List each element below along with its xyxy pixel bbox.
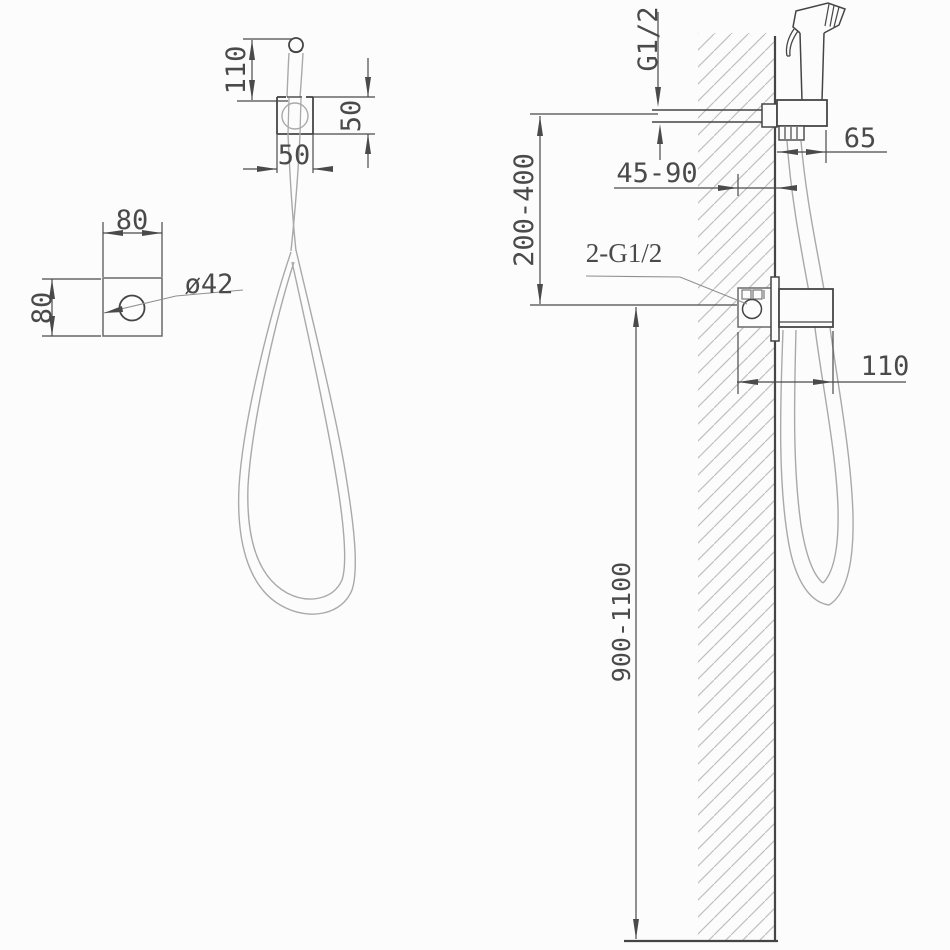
svg-text:50: 50: [278, 140, 311, 171]
side-view: G1/2 65 45-90 200-400: [509, 3, 909, 941]
sprayer-neck-left-line: [287, 53, 289, 97]
dim-hole-diameter: ø42: [104, 269, 243, 313]
cad-canvas: 110 50 50 80: [0, 0, 950, 950]
svg-text:65: 65: [844, 123, 877, 154]
svg-text:G1/2: G1/2: [633, 6, 664, 71]
handle-in-holder-left: [288, 98, 289, 134]
svg-text:200-400: 200-400: [509, 153, 540, 267]
holder-ring: [282, 103, 308, 129]
dim-tip-height: 110: [221, 39, 292, 101]
svg-text:900-1100: 900-1100: [607, 562, 636, 682]
dim-mounting-height: 900-1100: [607, 307, 639, 939]
dim-base-width: 80: [103, 205, 162, 277]
svg-text:80: 80: [116, 205, 149, 236]
wall-hatch: [698, 33, 775, 941]
hose-loop-front: [239, 134, 356, 614]
svg-text:50: 50: [336, 100, 367, 133]
svg-text:110: 110: [861, 351, 910, 382]
front-view: 110 50 50 80: [27, 38, 375, 614]
dim-base-height: 80: [27, 279, 101, 336]
dim-holder-width: 50: [243, 134, 333, 173]
valve-handle-box: [779, 289, 833, 327]
pipe-wall-fitting: [762, 104, 777, 127]
hose-nut: [779, 126, 804, 140]
sprayer-neck-right-line: [300, 53, 303, 97]
svg-text:110: 110: [221, 46, 252, 95]
holder-bracket-side: [777, 100, 827, 126]
bidet-sprayer-installation-drawing: 110 50 50 80: [0, 0, 950, 950]
svg-text:ø42: ø42: [185, 269, 234, 300]
dim-holder-height: 50: [313, 58, 375, 168]
svg-text:2-G1/2: 2-G1/2: [586, 238, 663, 268]
valve-trim-plate: [771, 277, 779, 341]
sprayer-side: [786, 3, 845, 101]
svg-text:45-90: 45-90: [616, 158, 697, 189]
hose-loop-side: [781, 141, 853, 605]
base-plate-square: [103, 278, 162, 336]
sprayer-tip-ball: [289, 38, 303, 52]
svg-text:80: 80: [27, 292, 58, 325]
dim-inlet-thread: G1/2: [633, 6, 664, 160]
